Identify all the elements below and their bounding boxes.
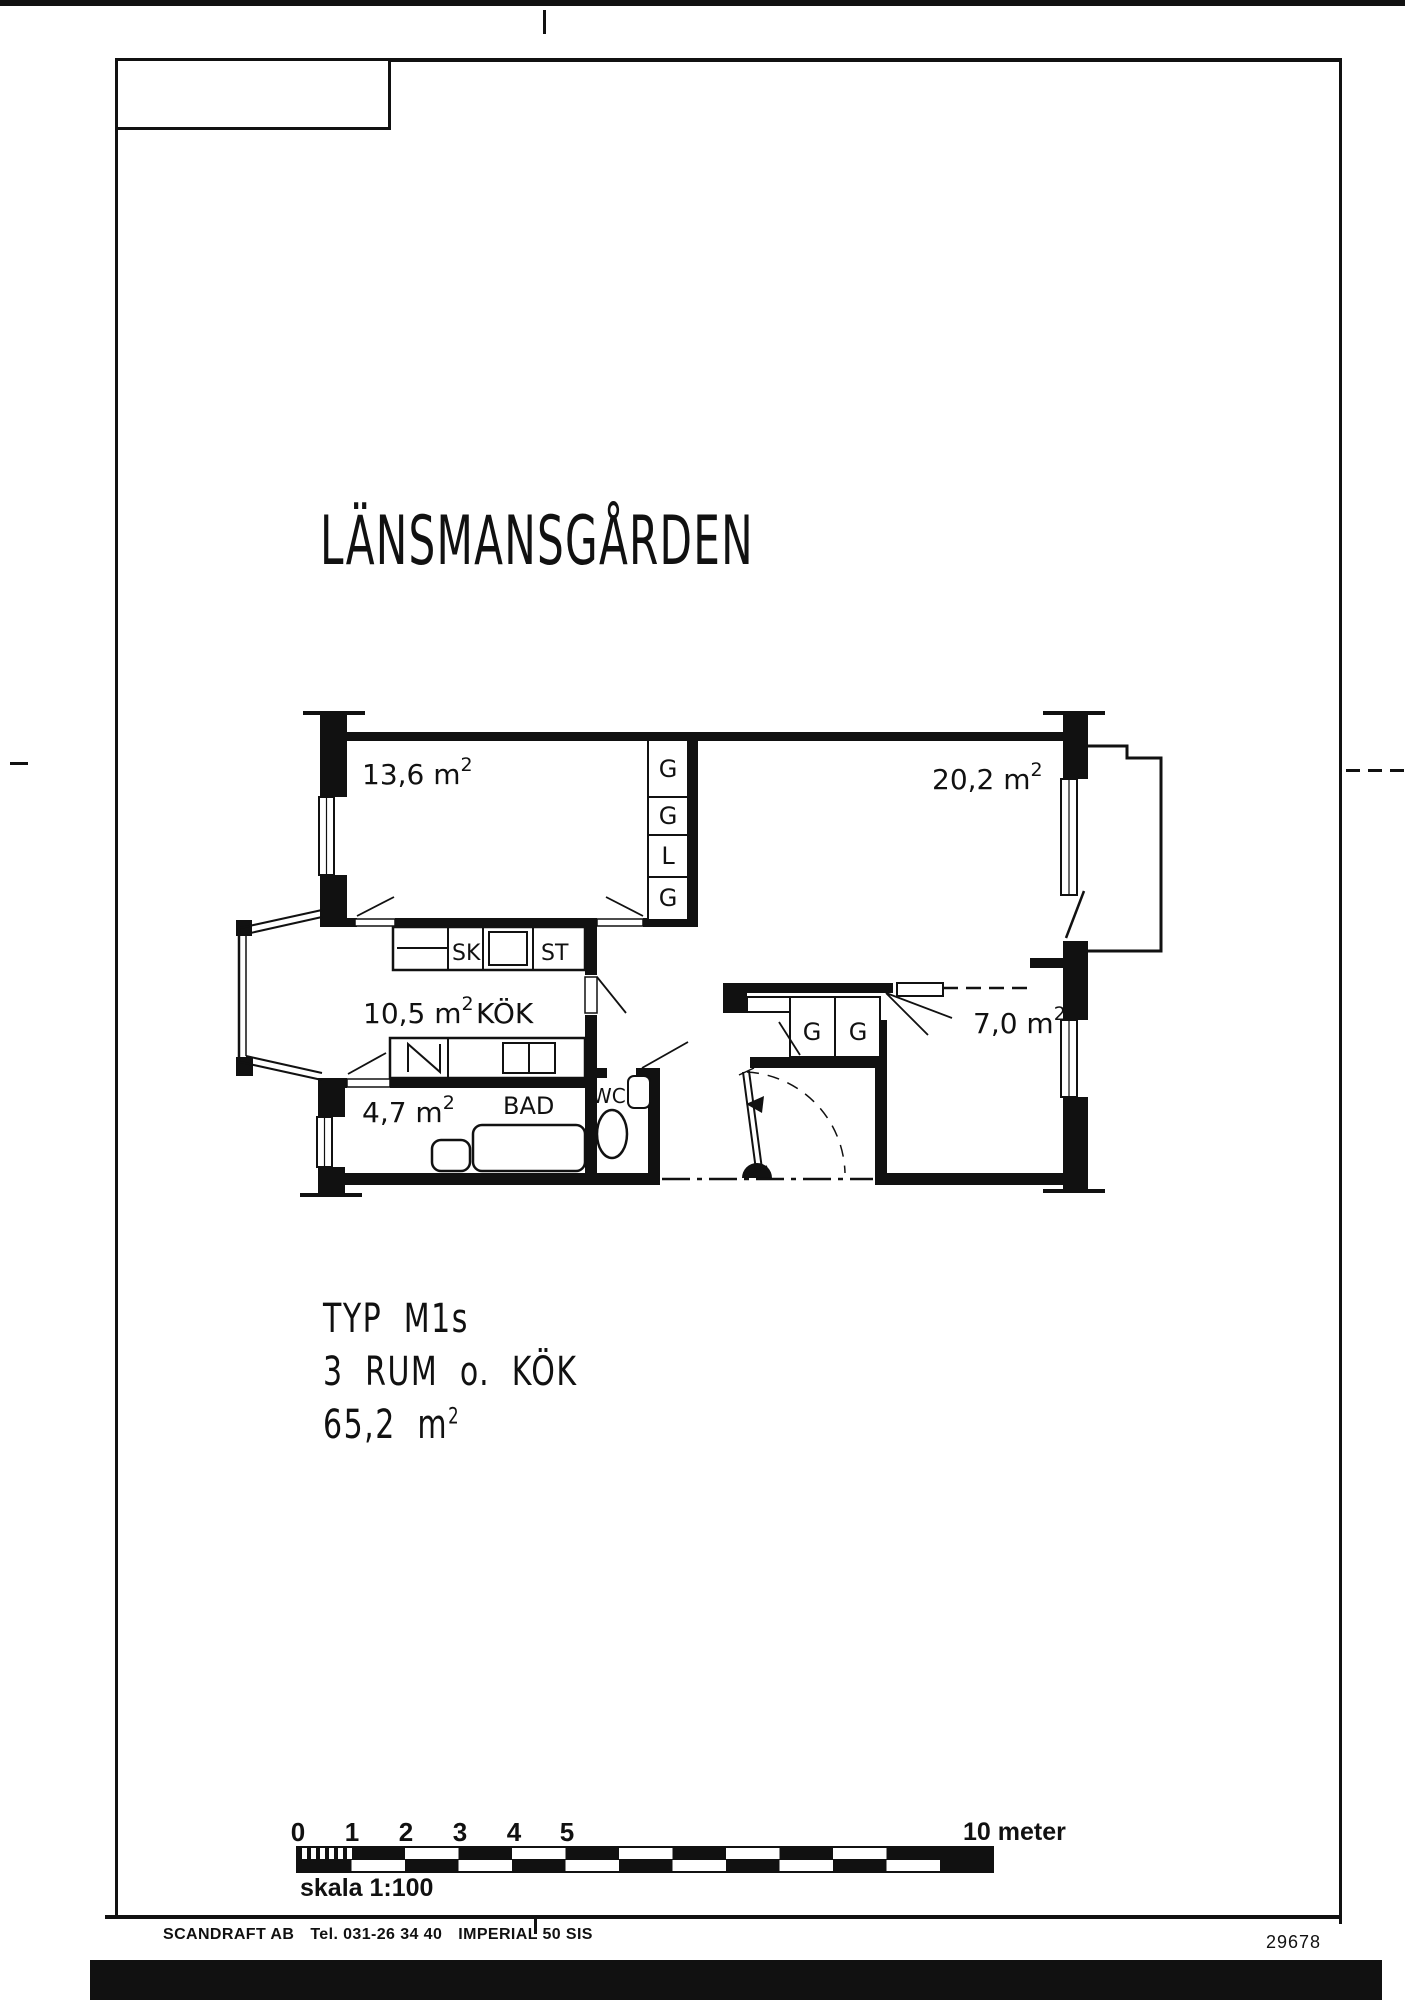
kitchen-area-label: 10,5 m2 [363, 993, 474, 1030]
page-title: LÄNSMANSGÅRDEN [320, 502, 754, 581]
closet-label: G [659, 884, 678, 912]
balcony-door-leaf [1066, 891, 1084, 938]
floor-plan: G G L G G G [180, 690, 1180, 1210]
scale-tick: 2 [399, 1817, 413, 1848]
scale-tick: 5 [560, 1817, 574, 1848]
drawing-number: 29678 [1266, 1932, 1321, 1953]
scale-bar-row-bottom [298, 1859, 992, 1871]
closet-label: G [849, 1018, 868, 1046]
scale-bar-end-segment [939, 1848, 992, 1859]
scanned-drawing-page: LÄNSMANSGÅRDEN [0, 0, 1405, 2000]
scale-caption: skala 1:100 [300, 1874, 433, 1903]
closet-label: G [803, 1018, 822, 1046]
scale-tick: 1 [345, 1817, 359, 1848]
registration-mark-left [10, 762, 28, 765]
kitchen-name-label: KÖK [476, 996, 534, 1030]
wc-label: WC [592, 1084, 626, 1108]
washbasin [432, 1140, 470, 1171]
cabinet-st-label: ST [541, 941, 569, 966]
closet-label: G [659, 802, 678, 830]
room2-area-label: 20,2 m2 [932, 759, 1043, 796]
type-area-line: 65,2 m2 [323, 1402, 460, 1448]
toilet [597, 1110, 627, 1158]
scale-tick: 3 [453, 1817, 467, 1848]
scale-end-label: 10 meter [963, 1818, 1066, 1847]
scale-tick: 0 [291, 1817, 305, 1848]
title-block-box [115, 58, 391, 130]
wc-basin [628, 1076, 650, 1108]
bathtub [473, 1125, 585, 1171]
frame-bottom [105, 1915, 1342, 1919]
cabinet-sk-label: SK [452, 941, 481, 966]
frame-left [115, 58, 118, 1918]
hall-closets: G G [747, 997, 880, 1057]
scale-tick: 4 [507, 1817, 521, 1848]
closet-label: L [661, 842, 675, 870]
bath-name-label: BAD [503, 1092, 554, 1120]
scan-edge-band-bottom [90, 1960, 1382, 2000]
entrance-door [739, 1068, 845, 1178]
type-line2: 3 RUM o. KÖK [323, 1349, 578, 1395]
registration-mark-top [543, 10, 546, 34]
type-line1: TYP M1s [323, 1296, 469, 1342]
room3-area-label: 7,0 m2 [973, 1003, 1066, 1040]
closet-column: G G L G [648, 740, 688, 920]
footer-product: IMPERIAL 50 SIS [458, 1926, 593, 1944]
bath-area-label: 4,7 m2 [362, 1092, 455, 1129]
type-area-value: 65,2 m [323, 1402, 448, 1448]
footer-phone: Tel. 031-26 34 40 [310, 1926, 442, 1944]
type-area-sup: 2 [448, 1405, 460, 1430]
balcony-outline [1088, 746, 1161, 951]
registration-mark-right [1346, 769, 1405, 772]
closet-label: G [659, 755, 678, 783]
partition-panel [897, 983, 943, 996]
scale-bar [296, 1846, 994, 1873]
footer-company: SCANDRAFT AB [163, 1926, 294, 1944]
scale-bar-row-top [298, 1848, 992, 1859]
scan-edge-band-top [0, 0, 1405, 6]
room1-area-label: 13,6 m2 [362, 754, 473, 791]
frame-right [1339, 58, 1342, 1924]
footer: SCANDRAFT AB Tel. 031-26 34 40 IMPERIAL … [163, 1926, 593, 1944]
scale-bar-hatch [298, 1848, 353, 1859]
